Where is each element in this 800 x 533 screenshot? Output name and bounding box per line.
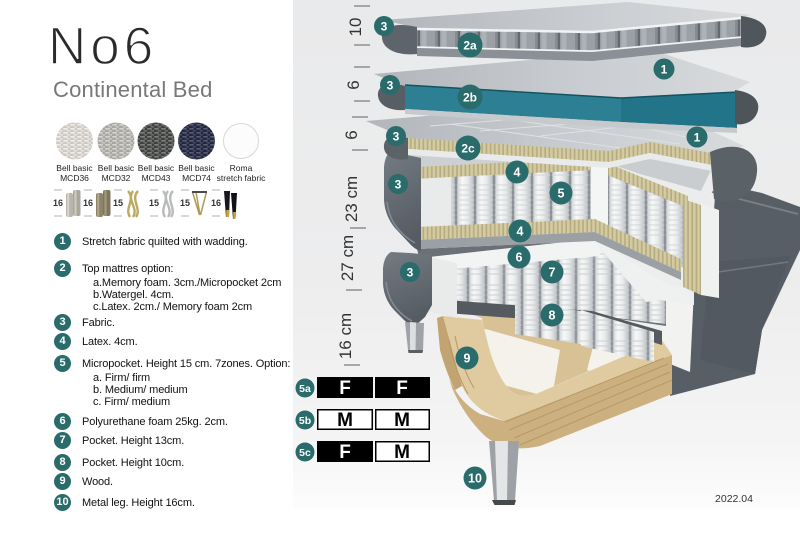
svg-text:2b: 2b (463, 91, 477, 105)
svg-text:8: 8 (549, 309, 556, 323)
svg-text:MCD32: MCD32 (102, 173, 131, 183)
svg-text:16: 16 (53, 198, 63, 208)
svg-text:4: 4 (514, 166, 521, 180)
svg-text:3: 3 (407, 266, 414, 280)
svg-text:16 cm: 16 cm (336, 313, 355, 359)
svg-text:23 cm: 23 cm (342, 176, 361, 222)
svg-text:15: 15 (180, 198, 190, 208)
svg-text:Bell basic: Bell basic (178, 163, 215, 173)
svg-text:stretch fabric: stretch fabric (217, 173, 266, 183)
svg-text:16: 16 (211, 198, 221, 208)
svg-text:M: M (394, 442, 410, 463)
svg-text:F: F (396, 378, 408, 399)
svg-text:5: 5 (558, 187, 565, 201)
svg-text:16: 16 (83, 198, 93, 208)
svg-text:MCD36: MCD36 (60, 173, 89, 183)
svg-text:3: 3 (381, 20, 388, 34)
svg-text:1: 1 (661, 63, 668, 77)
svg-text:MCD74: MCD74 (182, 173, 211, 183)
svg-text:5c: 5c (299, 447, 311, 459)
svg-text:2a: 2a (463, 39, 477, 53)
svg-text:F: F (339, 378, 351, 399)
svg-text:3: 3 (387, 79, 394, 93)
svg-text:6: 6 (516, 251, 523, 265)
svg-text:6: 6 (344, 80, 363, 89)
svg-text:10: 10 (468, 472, 482, 486)
svg-text:15: 15 (149, 198, 159, 208)
svg-text:6: 6 (342, 130, 361, 139)
svg-text:4: 4 (517, 225, 524, 239)
svg-text:M: M (337, 410, 353, 431)
svg-text:3: 3 (395, 178, 402, 192)
svg-text:2022.04: 2022.04 (715, 493, 753, 505)
svg-text:3: 3 (393, 130, 400, 144)
svg-text:27 cm: 27 cm (338, 235, 357, 281)
svg-text:5a: 5a (299, 383, 311, 395)
svg-text:F: F (339, 442, 351, 463)
svg-text:M: M (394, 410, 410, 431)
svg-text:9: 9 (464, 352, 471, 366)
svg-text:10: 10 (346, 18, 365, 37)
svg-text:Roma: Roma (230, 163, 253, 173)
svg-text:Bell basic: Bell basic (56, 163, 93, 173)
svg-text:5b: 5b (299, 415, 311, 427)
svg-text:MCD43: MCD43 (142, 173, 171, 183)
svg-text:2c: 2c (461, 142, 475, 156)
svg-text:15: 15 (113, 198, 123, 208)
svg-text:Bell basic: Bell basic (138, 163, 175, 173)
svg-text:1: 1 (694, 131, 701, 145)
svg-text:7: 7 (549, 266, 556, 280)
svg-text:Bell basic: Bell basic (98, 163, 135, 173)
